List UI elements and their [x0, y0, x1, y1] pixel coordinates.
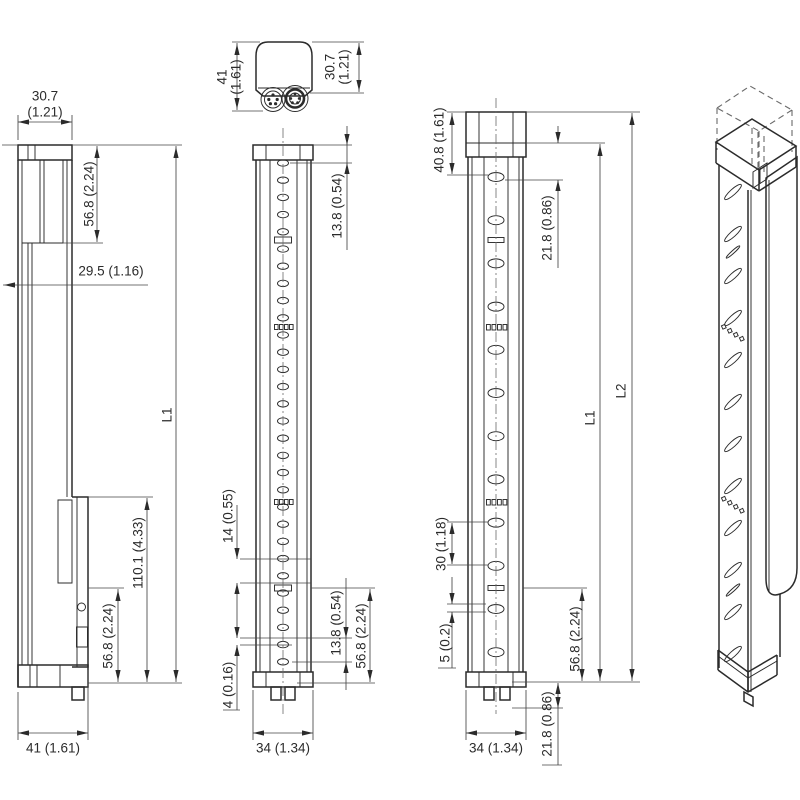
dim-side-depth: 29.5 (1.16)	[78, 264, 143, 279]
iso-body	[719, 157, 797, 692]
dim-b-slit: 5 (0.2)	[438, 623, 453, 662]
indicator-leds-b-2	[487, 500, 507, 506]
dim-b-length-l1: L1	[583, 410, 598, 425]
front-view-b: 40.8 (1.61) 21.8 (0.86) 30 (1.18) 5 (0.2…	[432, 98, 641, 765]
front-view-b-body	[466, 98, 526, 714]
side-view-body	[18, 145, 88, 700]
drawing-svg: 30.7 (1.21) 56.8 (2.24) 29.5 (1.16) L1 1…	[0, 0, 800, 800]
dim-a-edge-gap: 4 (0.16)	[221, 662, 236, 709]
dim-side-length-l1: L1	[160, 407, 175, 422]
iso-view	[716, 86, 797, 706]
dim-side-height-bottom: 56.8 (2.24)	[101, 603, 116, 668]
dim-end-height-inch: (1.61)	[229, 59, 244, 94]
dim-a-last-beam: 13.8 (0.54)	[329, 590, 344, 655]
technical-drawing: 30.7 (1.21) 56.8 (2.24) 29.5 (1.16) L1 1…	[0, 0, 800, 800]
end-view-body	[256, 42, 312, 112]
dim-a-first-beam: 13.8 (0.54)	[330, 173, 345, 238]
dim-b-first-beam: 21.8 (0.86)	[540, 195, 555, 260]
dim-side-width-bottom: 41 (1.61)	[26, 741, 80, 756]
dim-a-beam-gap: 14 (0.55)	[221, 489, 236, 543]
dim-b-bottom-section: 56.8 (2.24)	[568, 606, 583, 671]
dim-b-length-l2: L2	[614, 383, 629, 398]
dim-side-height-top: 56.8 (2.24)	[82, 161, 97, 226]
front-view-a: 13.8 (0.54) 14 (0.55) 4 (0.16) 13.8 (0.5…	[221, 126, 376, 756]
dim-b-width: 34 (1.34)	[469, 741, 523, 756]
dim-side-width-top-inch: (1.21)	[27, 105, 62, 120]
m12-connector-right	[282, 86, 308, 112]
dimension-arrowheads	[4, 44, 635, 736]
dim-a-width: 34 (1.34)	[256, 741, 310, 756]
iso-indicator-leds-1	[721, 324, 744, 341]
iso-indicator-leds-2	[721, 496, 744, 513]
dim-end-width-inch: (1.21)	[337, 49, 352, 84]
dim-a-bottom-section: 56.8 (2.24)	[354, 603, 369, 668]
dim-end-width-mm: 30.7	[323, 54, 338, 80]
indicator-leds-a-1	[275, 325, 294, 330]
dim-side-height-connector: 110.1 (4.33)	[131, 517, 146, 589]
dim-b-cap-height: 40.8 (1.61)	[432, 107, 447, 172]
iso-detached-cap-dashed	[717, 86, 792, 176]
dim-b-bottom-offset: 21.8 (0.86)	[540, 691, 555, 756]
side-view: 30.7 (1.21) 56.8 (2.24) 29.5 (1.16) L1 1…	[2, 89, 182, 756]
indicator-leds-b-1	[487, 325, 507, 331]
m12-connector-left	[261, 88, 285, 112]
dim-side-width-top-mm: 30.7	[32, 89, 58, 104]
front-view-a-body	[253, 128, 313, 714]
front-view-a-dimension-lines	[223, 126, 375, 740]
dim-b-beam-pitch: 30 (1.18)	[434, 517, 449, 571]
dim-end-height-mm: 41	[215, 69, 230, 84]
